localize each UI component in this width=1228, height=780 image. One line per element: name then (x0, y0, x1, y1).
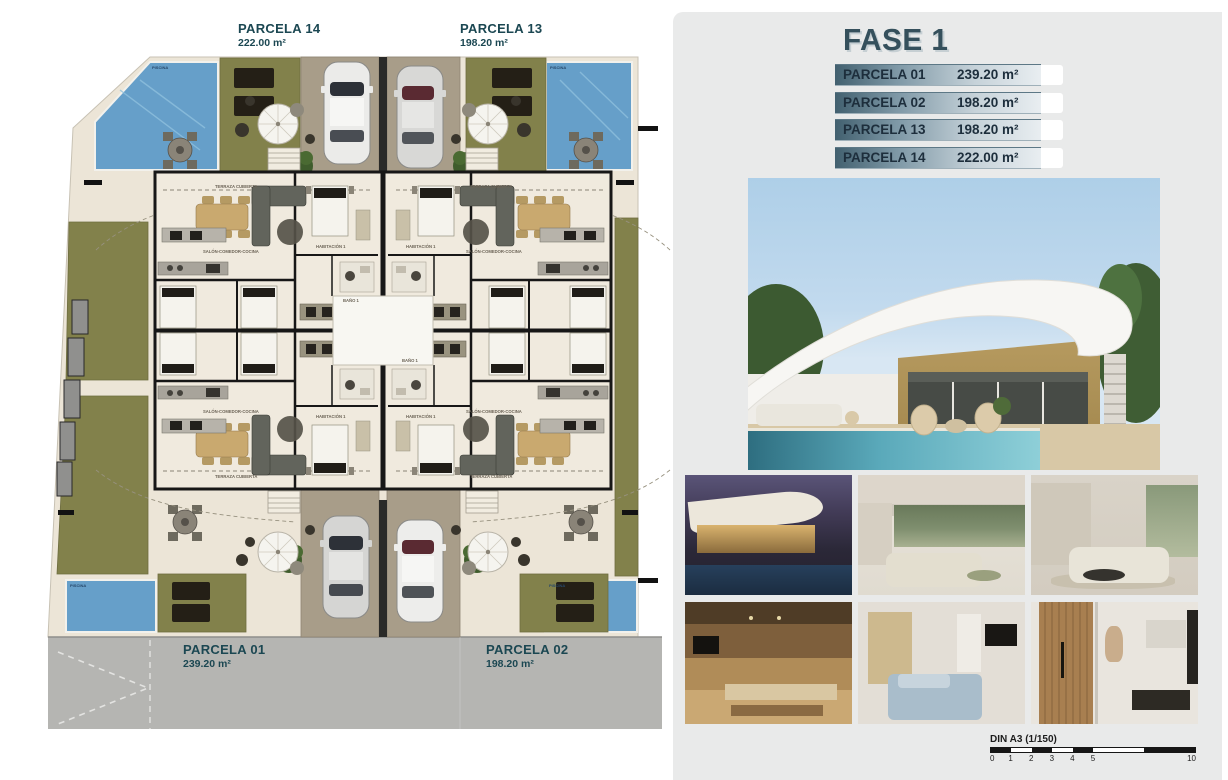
photo-shape-light (749, 616, 753, 620)
photo-shape-lit-wall (697, 525, 815, 553)
row-area: 198.20 m² (957, 119, 1019, 141)
scale-bar-label: DIN A3 (1/150) (990, 734, 1196, 745)
room-label-bath: BAÑO 1 (402, 358, 418, 363)
photo-shape-robe (1105, 626, 1123, 662)
photo-shape-stools (731, 705, 823, 716)
central-patio (333, 296, 433, 365)
photo-shape-pool (685, 565, 852, 595)
scale-tick: 1 (1008, 754, 1012, 763)
pool-label: PISCINA (70, 583, 86, 588)
photo-shape-tv (693, 636, 719, 654)
scale-tick: 0 (990, 754, 994, 763)
parcel-area: 198.20 m² (486, 658, 568, 670)
photo-shape-cabinet (1187, 610, 1198, 684)
pool-label: PISCINA (152, 65, 168, 70)
photo-shape-counter (725, 684, 837, 700)
thumb-living-dining (858, 475, 1025, 595)
room-label-terrace: TERRAZA CUBIERTA (215, 184, 257, 189)
thumb-living-room (1031, 475, 1198, 595)
parcel-name: PARCELA 14 (238, 22, 320, 37)
pool-label: PISCINA (549, 583, 565, 588)
room-label-terrace: TERRAZA CUBIERTA (470, 474, 512, 479)
scale-tick: 4 (1070, 754, 1074, 763)
main-render-photo (748, 178, 1160, 470)
main-photo-art (748, 178, 1160, 470)
room-label-terrace: TERRAZA CUBIERTA (215, 474, 257, 479)
row-label: PARCELA 02 (843, 92, 926, 114)
parcel-label-14: PARCELA 14 222.00 m² (238, 22, 320, 49)
photo-grid (685, 475, 1198, 737)
thumb-bedroom (858, 602, 1025, 724)
photo-shape-wood-wall (1039, 602, 1093, 724)
row-label: PARCELA 01 (843, 64, 926, 86)
site-plan: TERRAZA CUBIERTA TERRAZA CUBIERTA TERRAZ… (0, 0, 676, 780)
room-label-bedroom: HABITACIÓN 1 (406, 244, 436, 249)
car-silver-top-right (394, 66, 446, 168)
parcel-area: 239.20 m² (183, 658, 265, 670)
photo-shape-shower-glass (1095, 602, 1098, 724)
brochure-page: TERRAZA CUBIERTA TERRAZA CUBIERTA TERRAZ… (0, 0, 1228, 780)
thumb-kitchen (685, 602, 852, 724)
room-label-living: SALÓN-COMEDOR-COCINA (466, 409, 522, 414)
parcel-area: 198.20 m² (460, 37, 542, 49)
info-panel: FASE 1 PARCELA 01 239.20 m² PARCELA 02 1… (673, 12, 1222, 780)
car-white-top-left (321, 62, 373, 164)
plant (993, 397, 1011, 415)
row-area: 239.20 m² (957, 64, 1019, 86)
photo-shape-coffee-table (1083, 569, 1125, 581)
parcel-name: PARCELA 01 (183, 643, 265, 658)
room-label-living: SALÓN-COMEDOR-COCINA (203, 249, 259, 254)
photo-shape-door (957, 614, 981, 672)
parcel-name: PARCELA 02 (486, 643, 568, 658)
road (48, 637, 662, 729)
photo-pool (748, 430, 1040, 470)
egg-chair (911, 405, 937, 435)
photo-shape-shower-fixture (1061, 642, 1064, 678)
parcel-table: PARCELA 01 239.20 m² PARCELA 02 198.20 m… (835, 64, 1063, 174)
parcel-label-01: PARCELA 01 239.20 m² (183, 643, 265, 670)
scale-bar-ticks: 0 1 2 3 4 5 10 (990, 754, 1196, 764)
pool-top-left (95, 62, 218, 170)
room-label-bath: BAÑO 1 (343, 298, 359, 303)
scale-tick: 10 (1187, 754, 1196, 763)
photo-shape-mirror (1146, 620, 1186, 648)
scale-bar: DIN A3 (1/150) 0 1 2 3 4 5 10 (990, 734, 1196, 764)
parcel-area: 222.00 m² (238, 37, 320, 49)
table-row: PARCELA 01 239.20 m² (835, 64, 1063, 86)
thumb-bathroom (1031, 602, 1198, 724)
row-area: 198.20 m² (957, 92, 1019, 114)
photo-shape-vanity (1132, 690, 1190, 710)
parcel-label-13: PARCELA 13 198.20 m² (460, 22, 542, 49)
parcel-label-02: PARCELA 02 198.20 m² (486, 643, 568, 670)
photo-shape-pillows (898, 674, 950, 688)
row-label: PARCELA 13 (843, 119, 926, 141)
room-label-living: SALÓN-COMEDOR-COCINA (203, 409, 259, 414)
room-label-bedroom: HABITACIÓN 1 (316, 414, 346, 419)
room-label-terrace: TERRAZA CUBIERTA (470, 184, 512, 189)
scale-tick: 3 (1050, 754, 1054, 763)
photo-shape-window-view (894, 505, 1025, 547)
scale-tick: 2 (1029, 754, 1033, 763)
car-white-bottom-right (394, 520, 446, 622)
thumb-exterior-night (685, 475, 852, 595)
photo-shape-table (967, 570, 1001, 581)
table-row: PARCELA 02 198.20 m² (835, 92, 1063, 114)
photo-shape-sofa (886, 553, 982, 587)
outdoor-table (945, 419, 967, 433)
room-label-living: SALÓN-COMEDOR-COCINA (466, 249, 522, 254)
phase-title: FASE 1 (843, 22, 948, 58)
photo-shape-tv (985, 624, 1017, 646)
pool-label: PISCINA (550, 65, 566, 70)
floor-plan-svg: TERRAZA CUBIERTA TERRAZA CUBIERTA TERRAZ… (0, 0, 676, 780)
room-label-bedroom: HABITACIÓN 1 (406, 414, 436, 419)
row-label: PARCELA 14 (843, 147, 926, 169)
scale-tick: 5 (1091, 754, 1095, 763)
table-row: PARCELA 13 198.20 m² (835, 119, 1063, 141)
parcel-name: PARCELA 13 (460, 22, 542, 37)
scale-bar-segments (990, 747, 1196, 753)
outdoor-sofa (756, 404, 842, 426)
car-silver-bottom-left (320, 516, 372, 618)
row-area: 222.00 m² (957, 147, 1019, 169)
photo-shape-light (777, 616, 781, 620)
room-label-bedroom: HABITACIÓN 1 (316, 244, 346, 249)
table-row: PARCELA 14 222.00 m² (835, 147, 1063, 169)
